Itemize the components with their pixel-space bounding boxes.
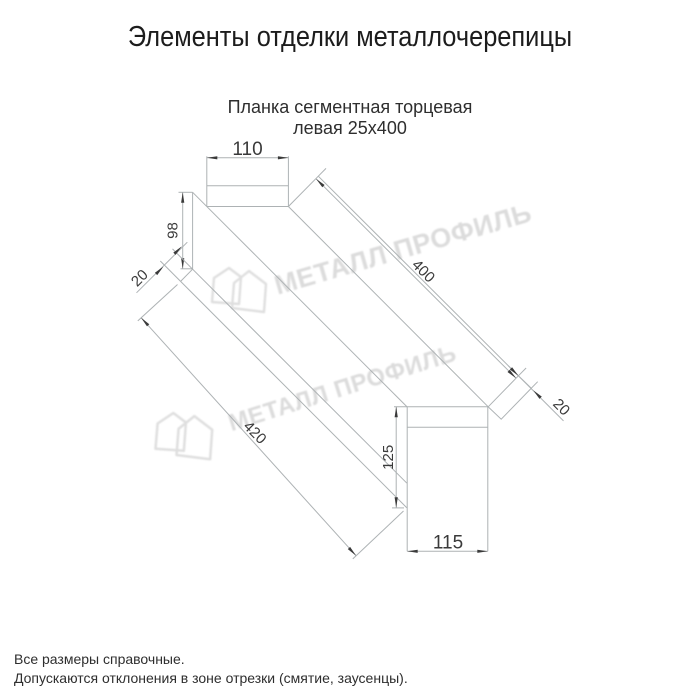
svg-text:МЕТАЛЛ ПРОФИЛЬ: МЕТАЛЛ ПРОФИЛЬ bbox=[225, 340, 460, 437]
svg-text:20: 20 bbox=[128, 266, 152, 290]
svg-text:115: 115 bbox=[433, 533, 463, 554]
svg-text:20: 20 bbox=[549, 395, 573, 419]
svg-text:125: 125 bbox=[380, 445, 397, 470]
svg-text:98: 98 bbox=[165, 222, 182, 239]
svg-text:МЕТАЛЛ ПРОФИЛЬ: МЕТАЛЛ ПРОФИЛЬ bbox=[271, 197, 535, 300]
svg-text:110: 110 bbox=[232, 139, 262, 160]
